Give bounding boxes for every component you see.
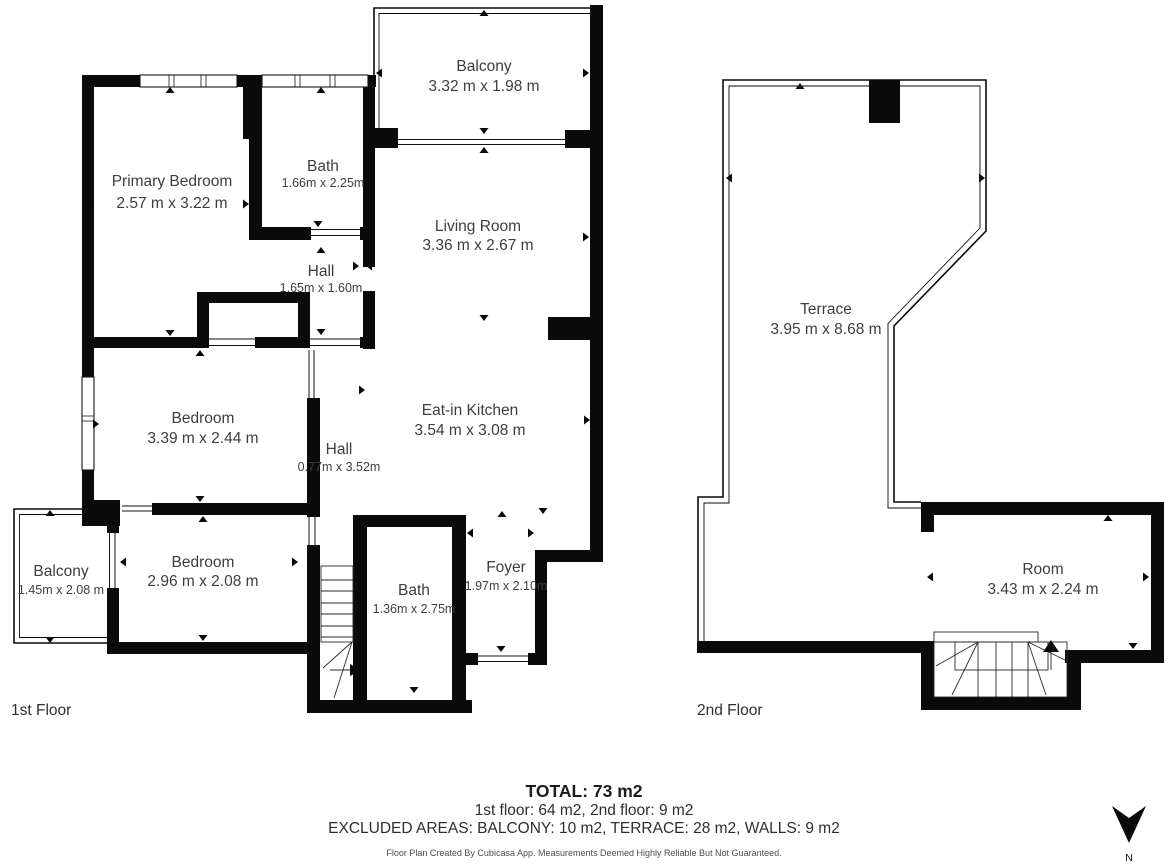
floor-plan-canvas: Primary Bedroom 2.57 m x 3.22 m Bath 1.6… — [0, 0, 1168, 864]
room-dims: 1.45m x 2.08 m — [18, 583, 104, 597]
room-label-primary-bedroom: Primary Bedroom 2.57 m x 3.22 m — [112, 173, 233, 212]
window-left-wall — [82, 377, 94, 470]
floor1-label: 1st Floor — [11, 702, 71, 719]
floor2-label: 2nd Floor — [697, 702, 762, 719]
room-label-bedroom-mid: Bedroom 3.39 m x 2.44 m — [147, 410, 258, 447]
measurement-tick — [410, 687, 419, 693]
measurement-tick — [46, 637, 55, 643]
room-label-hall-top: Hall 1.65m x 1.60m — [280, 263, 363, 295]
terrace-chimney-block — [869, 80, 900, 123]
room-dims: 1.36m x 2.75m — [373, 602, 456, 616]
measurement-tick — [927, 573, 933, 582]
summary-total: TOTAL: 73 m2 — [525, 781, 642, 801]
measurement-tick — [497, 646, 506, 652]
room-label-bath-top: Bath 1.66m x 2.25m — [282, 158, 365, 190]
summary-floors: 1st floor: 64 m2, 2nd floor: 9 m2 — [475, 802, 694, 819]
balcony-top-railing — [374, 8, 590, 145]
north-label: N — [1125, 852, 1133, 864]
room-dims: 0.77m x 3.52m — [298, 460, 381, 474]
window-top-left — [140, 75, 237, 87]
measurement-tick — [199, 635, 208, 641]
room-name: Primary Bedroom — [112, 173, 233, 190]
floor1-plan: Primary Bedroom 2.57 m x 3.22 m Bath 1.6… — [11, 5, 603, 719]
north-arrow-icon — [1112, 806, 1146, 843]
room-name: Foyer — [486, 559, 526, 576]
room-name: Hall — [308, 263, 335, 280]
measurement-tick — [292, 558, 298, 567]
room-label-foyer: Foyer 1.97m x 2.10m — [465, 559, 548, 593]
summary-excluded: EXCLUDED AREAS: BALCONY: 10 m2, TERRACE:… — [328, 820, 840, 837]
room-label-balcony-top: Balcony 3.32 m x 1.98 m — [428, 58, 539, 95]
measurement-tick — [314, 221, 323, 227]
room-name: Hall — [326, 441, 353, 458]
room-name: Balcony — [456, 58, 511, 75]
floor1-walls — [82, 5, 603, 713]
room-name: Bath — [398, 582, 430, 599]
room-name: Balcony — [33, 563, 88, 580]
measurement-tick — [480, 128, 489, 134]
measurement-tick — [539, 508, 548, 514]
measurement-tick — [1143, 573, 1149, 582]
room-label-terrace: Terrace 3.95 m x 8.68 m — [770, 301, 881, 338]
measurement-tick — [498, 511, 507, 517]
measurement-tick — [196, 496, 205, 502]
room-label-balcony-left: Balcony 1.45m x 2.08 m — [18, 563, 104, 597]
measurement-tick — [243, 200, 249, 209]
room-dims: 1.66m x 2.25m — [282, 176, 365, 190]
measurement-tick — [359, 386, 365, 395]
measurement-tick — [467, 529, 473, 538]
room-label-living-room: Living Room 3.36 m x 2.67 m — [422, 218, 533, 254]
measurement-tick — [120, 558, 126, 567]
terrace-railing — [698, 80, 986, 641]
floor2-staircase — [934, 632, 1067, 697]
measurement-tick — [166, 87, 175, 93]
measurement-tick — [1129, 643, 1138, 649]
room-name: Bath — [307, 158, 339, 175]
room-dims: 1.97m x 2.10m — [465, 579, 548, 593]
measurement-tick — [317, 247, 326, 253]
measurement-tick — [317, 87, 326, 93]
room-dims: 2.96 m x 2.08 m — [147, 573, 258, 590]
room-dims: 3.32 m x 1.98 m — [428, 78, 539, 95]
measurement-tick — [480, 10, 489, 16]
room-dims: 3.36 m x 2.67 m — [422, 237, 533, 254]
room-dims: 1.65m x 1.60m — [280, 281, 363, 295]
room-name: Bedroom — [172, 554, 235, 571]
room-label-room: Room 3.43 m x 2.24 m — [987, 561, 1098, 598]
room-dims: 3.39 m x 2.44 m — [147, 430, 258, 447]
measurement-tick — [166, 330, 175, 336]
measurement-tick — [1104, 515, 1113, 521]
room-label-kitchen: Eat-in Kitchen 3.54 m x 3.08 m — [414, 402, 525, 439]
measurement-tick — [583, 69, 589, 78]
measurement-tick — [480, 147, 489, 153]
measurement-tick — [46, 510, 55, 516]
room-name: Living Room — [435, 218, 521, 235]
measurement-tick — [584, 416, 590, 425]
window-top-right — [262, 75, 368, 87]
summary-disclaimer: Floor Plan Created By Cubicasa App. Meas… — [386, 848, 781, 858]
summary-block: TOTAL: 73 m2 1st floor: 64 m2, 2nd floor… — [328, 781, 840, 858]
room-dims: 3.95 m x 8.68 m — [770, 321, 881, 338]
room-label-bath-bottom: Bath 1.36m x 2.75m — [373, 582, 456, 616]
measurement-tick — [199, 516, 208, 522]
measurement-tick — [979, 174, 985, 183]
room-name: Terrace — [800, 301, 852, 318]
room-label-bedroom-bottom: Bedroom 2.96 m x 2.08 m — [147, 554, 258, 590]
room-name: Eat-in Kitchen — [422, 402, 519, 419]
measurement-tick — [583, 233, 589, 242]
measurement-tick — [353, 262, 359, 271]
floor2-plan: Terrace 3.95 m x 8.68 m Room 3.43 m x 2.… — [697, 80, 1164, 719]
room-name: Room — [1022, 561, 1063, 578]
room-name: Bedroom — [172, 410, 235, 427]
floor2-walls — [697, 502, 1164, 710]
room-dims: 3.43 m x 2.24 m — [987, 581, 1098, 598]
north-compass: N — [1112, 806, 1146, 864]
room-dims: 2.57 m x 3.22 m — [116, 195, 227, 212]
measurement-tick — [196, 350, 205, 356]
measurement-tick — [528, 529, 534, 538]
measurement-tick — [317, 329, 326, 335]
measurement-tick — [480, 315, 489, 321]
measurement-tick — [93, 420, 99, 429]
room-dims: 3.54 m x 3.08 m — [414, 422, 525, 439]
